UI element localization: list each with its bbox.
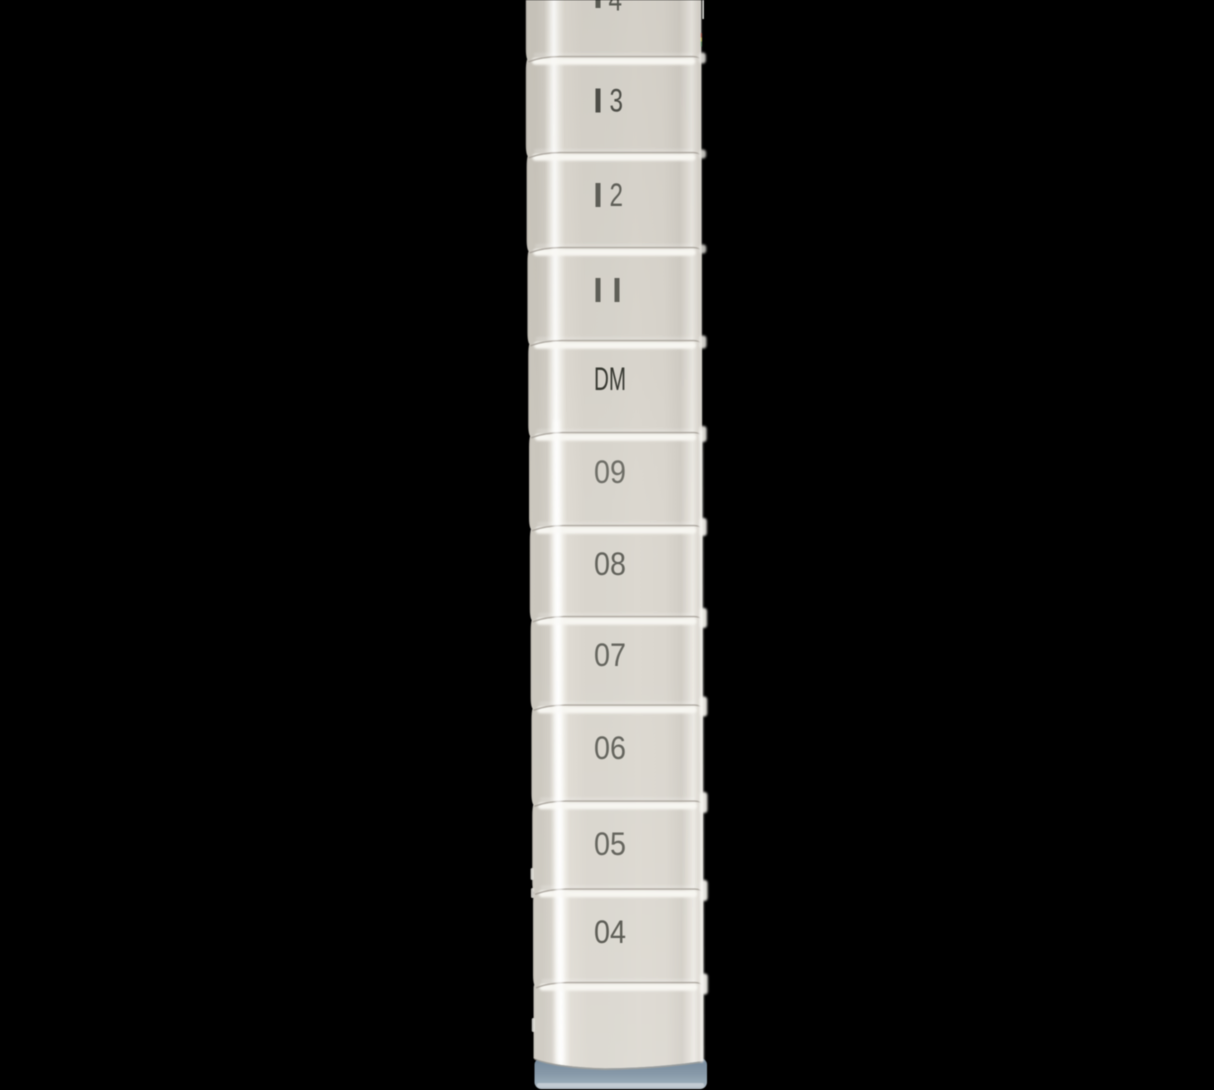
svg-text:06: 06 — [594, 730, 626, 766]
svg-text:3: 3 — [610, 83, 624, 119]
svg-text:04: 04 — [594, 914, 626, 950]
svg-text:09: 09 — [594, 454, 626, 490]
svg-text:2: 2 — [610, 177, 624, 213]
svg-text:08: 08 — [594, 546, 626, 582]
svg-text:05: 05 — [594, 826, 626, 862]
svg-text:07: 07 — [594, 637, 626, 673]
svg-text:4: 4 — [609, 0, 623, 18]
svg-text:DM: DM — [594, 361, 626, 397]
